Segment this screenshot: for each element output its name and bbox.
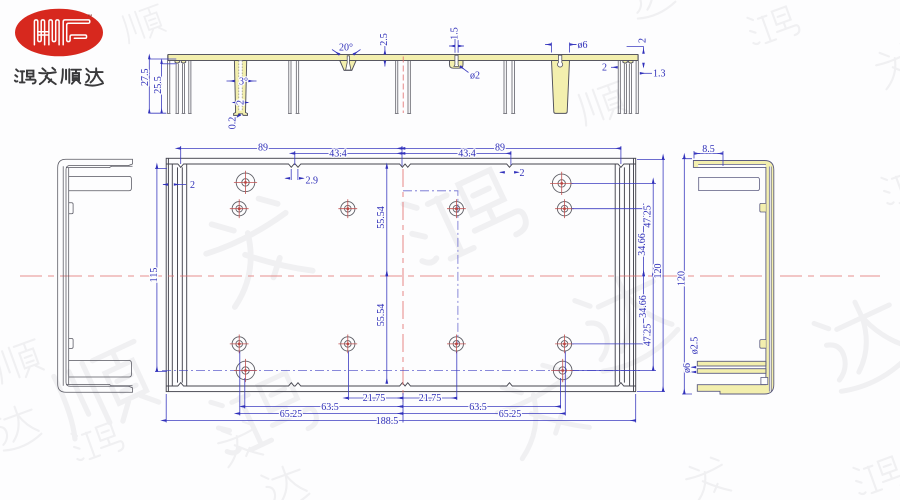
svg-text:65.25: 65.25 [280, 409, 303, 420]
svg-text:63.5: 63.5 [321, 402, 339, 413]
svg-text:43.4: 43.4 [329, 148, 347, 159]
svg-text:0.2: 0.2 [228, 117, 239, 130]
svg-text:2.5: 2.5 [379, 33, 390, 46]
svg-text:25.5: 25.5 [153, 76, 164, 94]
svg-text:ø6: ø6 [578, 40, 588, 51]
svg-text:8.5: 8.5 [702, 144, 715, 155]
svg-text:27.5: 27.5 [140, 68, 151, 86]
svg-text:120: 120 [677, 271, 688, 286]
svg-text:2: 2 [190, 180, 195, 191]
svg-text:47.25: 47.25 [642, 324, 653, 347]
svg-text:3°: 3° [239, 76, 248, 87]
svg-text:34.66: 34.66 [638, 295, 649, 318]
svg-text:115: 115 [149, 268, 160, 283]
svg-text:89: 89 [495, 143, 505, 154]
svg-text:188.5: 188.5 [376, 416, 399, 427]
svg-text:ø2.5: ø2.5 [690, 337, 701, 355]
svg-text:ø6: ø6 [682, 363, 693, 373]
svg-text:2: 2 [602, 63, 607, 74]
svg-text:55.54: 55.54 [376, 206, 387, 229]
svg-text:2: 2 [520, 168, 525, 179]
svg-text:20°: 20° [339, 43, 353, 54]
svg-text:63.5: 63.5 [469, 402, 487, 413]
svg-text:ø2: ø2 [470, 71, 480, 82]
svg-text:™: ™ [87, 14, 93, 20]
svg-text:89: 89 [258, 143, 268, 154]
svg-text:55.54: 55.54 [376, 304, 387, 327]
svg-text:43.4: 43.4 [458, 148, 476, 159]
svg-text:21.75: 21.75 [363, 393, 386, 404]
svg-text:34.66: 34.66 [637, 233, 648, 256]
svg-text:21.75: 21.75 [419, 393, 442, 404]
svg-text:47.25: 47.25 [642, 205, 653, 228]
svg-text:1.3: 1.3 [653, 69, 666, 80]
svg-text:65.25: 65.25 [499, 409, 522, 420]
svg-text:120: 120 [653, 264, 664, 279]
svg-text:2.9: 2.9 [306, 175, 319, 186]
svg-text:2: 2 [236, 100, 247, 105]
svg-text:2: 2 [638, 38, 649, 43]
svg-text:1.5: 1.5 [450, 27, 461, 40]
